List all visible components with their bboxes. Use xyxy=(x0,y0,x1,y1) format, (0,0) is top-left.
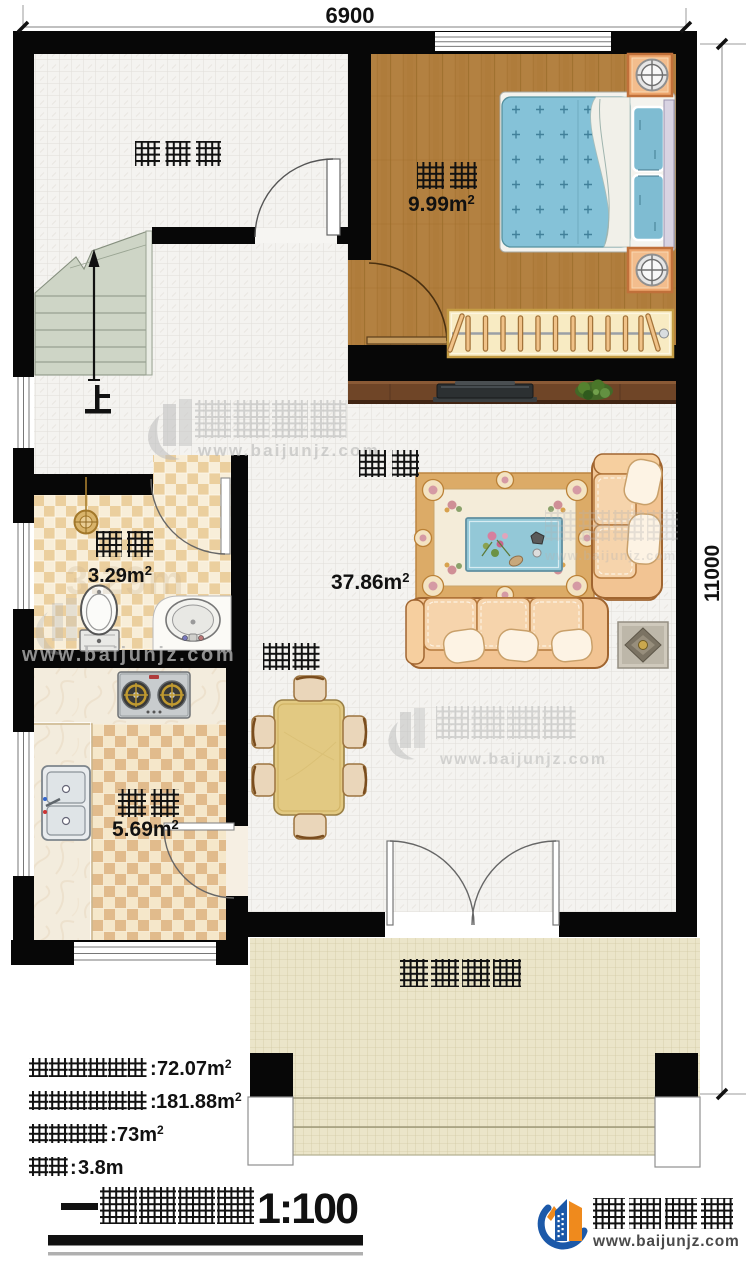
svg-text:3.8m: 3.8m xyxy=(78,1157,124,1179)
svg-text:9.99m2: 9.99m2 xyxy=(408,192,475,216)
svg-text:5.69m2: 5.69m2 xyxy=(112,817,179,841)
svg-text:181.88m2: 181.88m2 xyxy=(156,1090,242,1113)
svg-text:3.29m2: 3.29m2 xyxy=(88,563,152,587)
svg-text:www.baijunjz.com: www.baijunjz.com xyxy=(197,441,380,460)
svg-text:www.baijunjz.com: www.baijunjz.com xyxy=(439,751,607,768)
svg-text:www.baijunjz.com: www.baijunjz.com xyxy=(21,644,236,666)
svg-text::: : xyxy=(70,1157,77,1179)
svg-text:1:100: 1:100 xyxy=(257,1185,358,1233)
svg-text:73m2: 73m2 xyxy=(117,1123,164,1146)
svg-text::: : xyxy=(150,1058,157,1080)
svg-text:6900: 6900 xyxy=(326,3,375,28)
svg-text::: : xyxy=(110,1124,117,1146)
svg-text:37.86m2: 37.86m2 xyxy=(331,570,409,594)
svg-text:11000: 11000 xyxy=(701,545,724,602)
svg-text:www.baijunjz.com: www.baijunjz.com xyxy=(592,1233,740,1250)
svg-text:72.07m2: 72.07m2 xyxy=(157,1057,232,1080)
svg-text:www.baijunjz.com: www.baijunjz.com xyxy=(544,548,676,563)
